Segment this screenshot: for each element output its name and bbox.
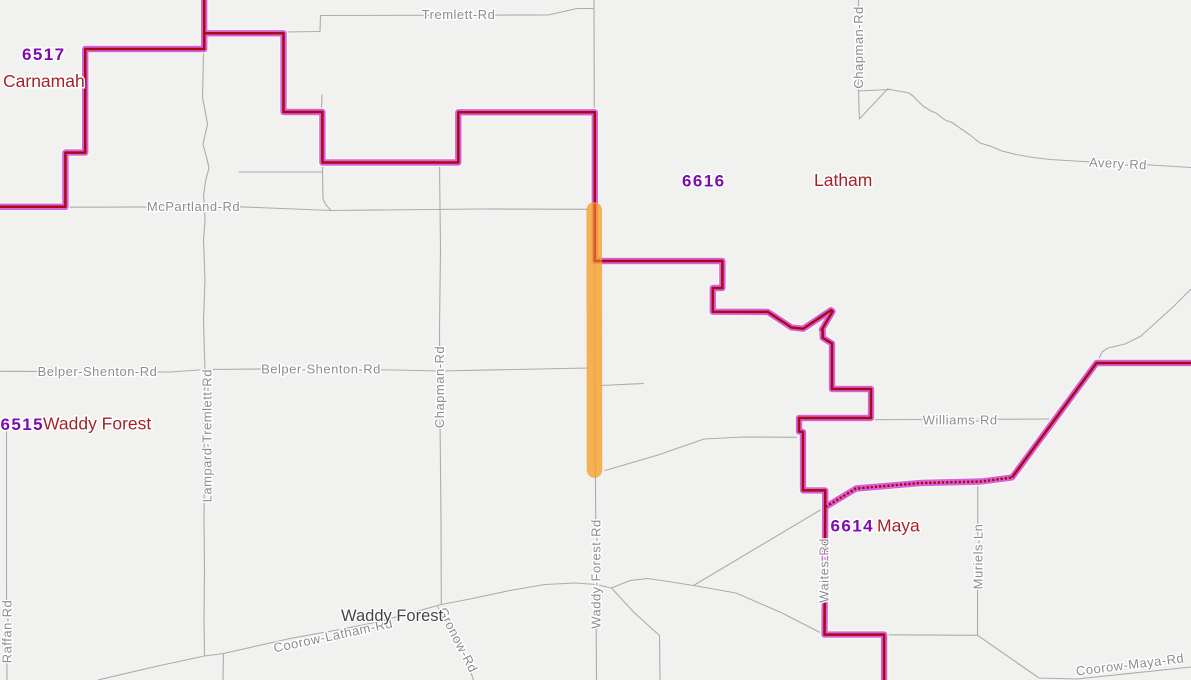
svg-text:Waddy Forest: Waddy Forest [43, 414, 151, 434]
svg-text:Latham: Latham [814, 170, 872, 190]
svg-text:Avery-Rd: Avery-Rd [1089, 154, 1148, 172]
svg-text:Tremlett-Rd: Tremlett-Rd [422, 7, 496, 22]
svg-text:6616: 6616 [682, 172, 725, 191]
svg-text:Lampard-Tremlett-Rd: Lampard-Tremlett-Rd [199, 369, 214, 502]
svg-text:Belper-Shenton-Rd: Belper-Shenton-Rd [261, 362, 381, 377]
svg-text:6515: 6515 [1, 415, 44, 434]
svg-text:McPartland-Rd: McPartland-Rd [147, 199, 240, 214]
svg-text:Muriels-Ln: Muriels-Ln [971, 524, 986, 590]
svg-text:Carnamah: Carnamah [3, 71, 85, 91]
svg-text:Maya: Maya [877, 516, 920, 536]
svg-text:Waddy Forest: Waddy Forest [341, 607, 444, 625]
svg-text:Waddy-Forest-Rd: Waddy-Forest-Rd [589, 519, 604, 629]
svg-text:Belper-Shenton-Rd: Belper-Shenton-Rd [38, 364, 158, 379]
svg-text:Chapman-Rd: Chapman-Rd [432, 346, 447, 428]
svg-text:6517: 6517 [22, 45, 65, 64]
svg-text:Waites-Rd: Waites-Rd [817, 538, 832, 603]
svg-text:Chapman-Rd: Chapman-Rd [851, 6, 866, 88]
svg-text:6614: 6614 [831, 517, 874, 536]
svg-text:Raffan-Rd: Raffan-Rd [0, 600, 14, 664]
svg-text:Williams-Rd: Williams-Rd [923, 413, 998, 428]
